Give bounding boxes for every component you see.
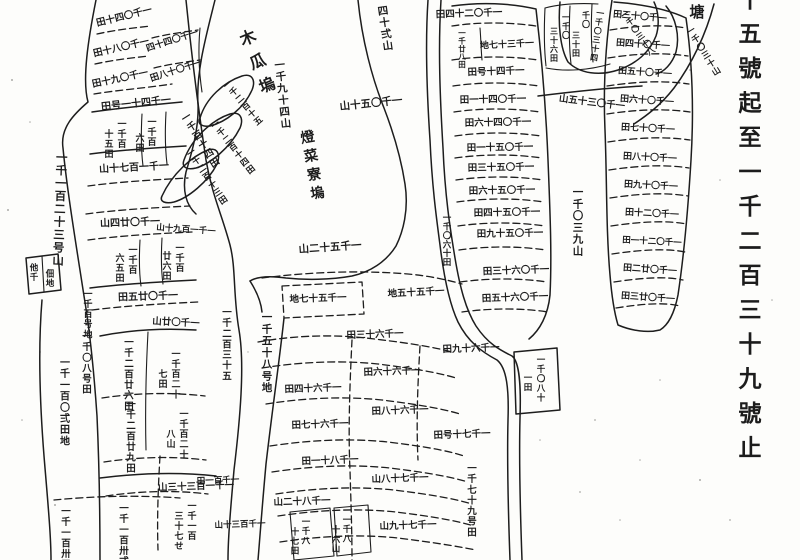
parcel-label: 他千 (29, 263, 39, 284)
parcel-label: 一田 (524, 374, 533, 394)
parcel-label: 田六十〇千一 (620, 92, 675, 108)
parcel-label: 三十七せ (174, 511, 183, 552)
boundary-far-left (40, 300, 51, 560)
parcel-label: 田十八〇千一 (92, 35, 151, 60)
parcel-label: 一千〇八号田 (81, 332, 92, 396)
parcel-label: 山四廿〇千一 (100, 214, 160, 229)
parcel-label: 田十二〇千一 (625, 206, 680, 221)
parcel-label: 田号十七千一 (433, 427, 491, 441)
parcel-label: 山五十三〇千一 (558, 92, 626, 112)
parcel-label: 佃地 (45, 269, 55, 290)
parcel-label: 田四十二〇千一 (436, 6, 503, 20)
parcel-label: 千〇 (582, 10, 590, 29)
parcel-label: 一千八 (301, 518, 311, 547)
parcel-label: 一千一百 (187, 502, 196, 542)
parcel-label: 田九十六千一 (442, 341, 500, 355)
corner-char: 塘 (689, 3, 704, 21)
parcel-label: 一千〇 (562, 13, 570, 40)
parcel-label: 六五田 (115, 252, 124, 284)
parcel-label: 三十六田 (550, 27, 558, 63)
parcel-label: 一千廿八田 (457, 29, 466, 70)
parcel-label: 一千一百卅五 (60, 507, 71, 560)
parcel-label: 田三廿〇千一 (621, 289, 676, 305)
parcel-label: 田一十二〇千一 (622, 234, 682, 248)
parcel-label: 田三十六〇千一 (483, 263, 550, 277)
parcel-label: 田四十五〇千一 (474, 206, 541, 219)
parcel-label: 田四十六千一 (284, 381, 342, 395)
parcel-label: 十五田 (104, 128, 113, 160)
parcel-label: 山十五〇千一 (339, 93, 404, 113)
parcel-label: 一千一百二十三号山 (52, 150, 68, 267)
parcel-label: 一千二百廿九田 (125, 400, 136, 475)
boundary-lines (26, 0, 714, 560)
parcel-label: 田号一十四千一 (101, 93, 172, 113)
parcel-label: 六田 (135, 132, 144, 154)
parcel-label: 田九十〇千一 (624, 178, 679, 193)
parcel-label: 田八十〇千一 (623, 150, 678, 165)
parcel-label: 四十弍山 (377, 5, 394, 53)
parcel-label: 地五十五千一 (387, 285, 445, 300)
parcel-label: 十六山 (332, 525, 341, 555)
parcel-label: 一千〇八十 (536, 356, 546, 404)
parcel-label: 田一百千一 (197, 474, 240, 486)
parcel-label: 田三十〇千一 (613, 8, 668, 25)
parcel-label: 一千百二十 (179, 410, 188, 460)
parcel-label: 地七十三千一 (480, 37, 535, 52)
parcel-label: 一千五十八号地 (261, 312, 273, 395)
cadastral-map: 十五號起至一千二百三十九號止塘木瓜塢燈菜寮塢一千九十四山一千一百二十三号山一千〇… (0, 0, 800, 560)
parcel-label: 一千九十四山 (273, 59, 292, 131)
parcel-label: 一千百 (147, 118, 156, 148)
parcel-label: 一千一百卅弍 (118, 504, 129, 560)
parcel-label: 八山 (165, 429, 176, 450)
parcel-label: 廿六田 (162, 250, 171, 282)
parcel-label: 田十四〇千一 (95, 3, 154, 29)
parcel-label: 田号十四千一 (467, 64, 525, 78)
parcel-label: 田五廿〇千一 (118, 288, 178, 303)
parcel-label: 田一十八千一 (301, 453, 359, 467)
parcel-label: 田八十六千一 (371, 403, 429, 417)
parcel-label: 田二廿〇千一 (623, 261, 678, 277)
parcel-label: 一千百 (175, 244, 184, 274)
parcel-label: 一千八 (342, 516, 352, 545)
parcel-label: 山廿〇千一 (152, 315, 201, 329)
parcel-labels: 十五號起至一千二百三十九號止塘木瓜塢燈菜寮塢一千九十四山一千一百二十三号山一千〇… (29, 0, 763, 560)
parcel-label: 田三十六千一 (346, 327, 404, 341)
parcel-label: 田九十五〇千一 (477, 227, 544, 240)
parcel-label: 田六十六千一 (363, 364, 421, 378)
parcel-label: 山二十八千一 (273, 494, 331, 508)
boundary-blob-band-connector (250, 281, 262, 312)
parcel-label: 田十九〇千一 (91, 66, 150, 90)
parcel-label: 十七田 (291, 527, 300, 557)
scanned-cadastral-map-page: 十五號起至一千二百三十九號止塘木瓜塢燈菜寮塢一千九十四山一千一百二十三号山一千〇… (0, 0, 800, 560)
parcel-label: 田六十四〇千一 (465, 116, 532, 129)
parcel-label: 山十三百千一 (214, 518, 266, 531)
parcel-label: 山八十七千一 (371, 471, 429, 485)
parcel-label: 山九十七千一 (379, 518, 437, 532)
parcel-label: 三十田 (572, 31, 580, 58)
parcel-label: 一千〇六十田 (443, 214, 452, 269)
parcel-label: 七田 (158, 368, 167, 390)
parcel-label: 田六十五〇千一 (469, 184, 536, 197)
parcel-label: 一千百 (117, 120, 126, 150)
parcel-label: 一千〇三九山 (572, 187, 584, 258)
parcel-label: 田一十五〇千一 (467, 141, 534, 154)
parcel-label: 一千百二十 (171, 350, 180, 400)
parcel-label: 山二十五千一 (298, 238, 362, 255)
parcel-label: 一千百 (128, 246, 137, 276)
place-name-label: 木瓜塢 (236, 26, 279, 98)
parcel-label: 地七十五千一 (289, 291, 347, 305)
parcel-label: 山十九百一千一 (156, 222, 217, 237)
place-name-label: 燈菜寮塢 (298, 128, 327, 203)
parcel-label: 一千七十九号田 (466, 464, 477, 539)
parcel-label: 田三十五〇千一 (468, 161, 535, 174)
parcel-label: 田五十〇千一 (618, 64, 673, 80)
margin-caption: 十五號起至一千二百三十九號止 (738, 0, 763, 462)
parcel-label: 一千一百〇弍田地 (60, 358, 70, 447)
parcel-label: 山十七百一千一 (99, 159, 170, 176)
parcel-label: 田七十〇千一 (621, 121, 676, 136)
parcel-label: 田七十六千一 (291, 417, 349, 431)
parcel-label: 田五十六〇千一 (482, 290, 549, 304)
parcel-label: 一千二百三十五 (222, 308, 232, 383)
parcel-label: 田一十四〇千一 (460, 93, 527, 106)
